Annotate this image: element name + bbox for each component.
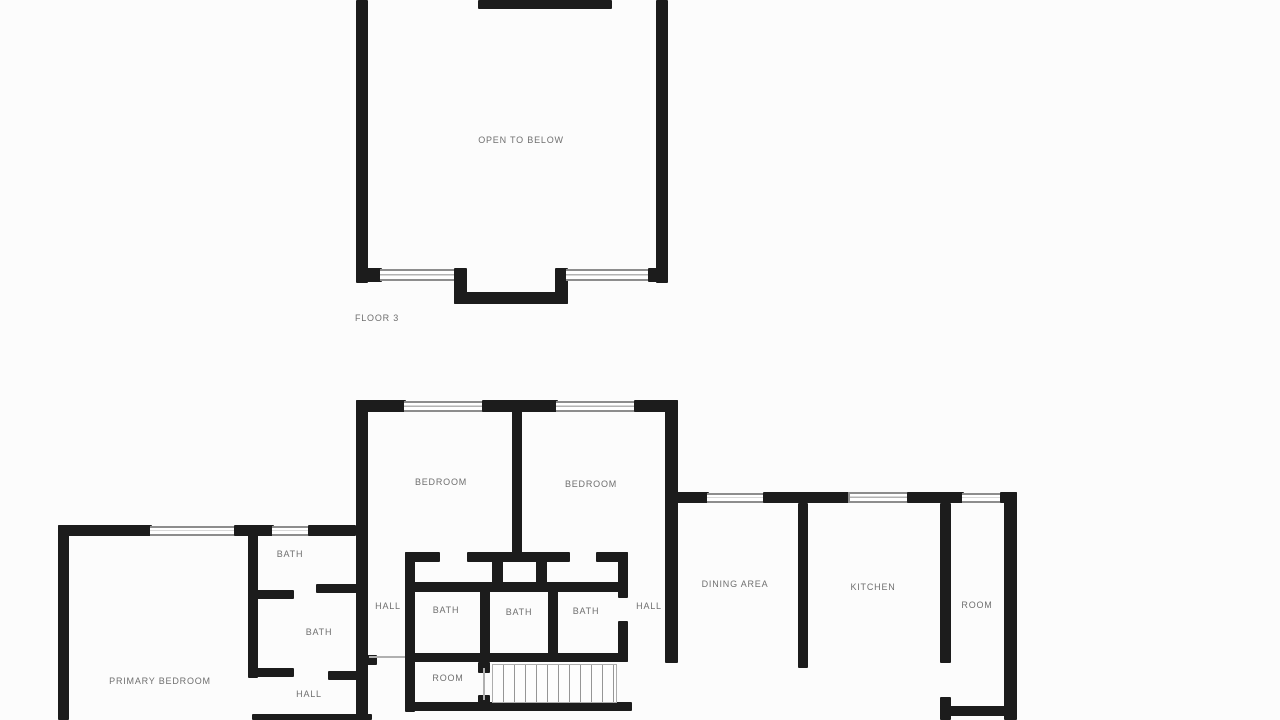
interior-wall: [940, 503, 951, 663]
staircase: [492, 664, 617, 703]
floor-caption: FLOOR 3: [355, 313, 399, 323]
interior-wall: [248, 590, 294, 599]
interior-wall: [248, 533, 258, 678]
interior-wall: [405, 653, 628, 662]
room-label-hall-left: HALL: [375, 601, 401, 611]
interior-wall: [548, 590, 558, 655]
wall-segment: [634, 400, 678, 412]
floor-plan-image: OPEN TO BELOW FLOOR 3: [0, 0, 1280, 720]
floor-plan-drawing: OPEN TO BELOW FLOOR 3: [0, 0, 1280, 720]
door-opening-line: [369, 656, 405, 658]
room-label-bath-center-3: BATH: [573, 606, 600, 616]
wall-segment: [648, 268, 668, 282]
room-label-open-to-below: OPEN TO BELOW: [478, 135, 564, 145]
room-label-bedroom-left: BEDROOM: [415, 477, 467, 487]
room-label-hall-right: HALL: [636, 601, 662, 611]
room-label-bath-upper-left: BATH: [277, 549, 304, 559]
window: [566, 269, 652, 281]
window: [962, 493, 1002, 503]
door-opening-line: [483, 668, 485, 700]
interior-wall: [512, 410, 522, 560]
room-label-dining-area: DINING AREA: [702, 579, 769, 589]
wall-segment: [454, 292, 568, 304]
wall-segment: [308, 525, 356, 536]
room-label-kitchen: KITCHEN: [850, 582, 895, 592]
wall-segment: [940, 706, 1017, 716]
window: [150, 526, 236, 536]
interior-wall: [467, 552, 570, 562]
interior-wall: [480, 590, 490, 655]
wall-segment: [356, 0, 368, 283]
window: [556, 401, 636, 412]
window: [404, 401, 484, 412]
room-label-room-far-right: ROOM: [961, 600, 992, 610]
interior-wall: [405, 552, 440, 562]
interior-wall: [405, 552, 415, 712]
wall-segment: [356, 268, 382, 282]
room-label-bath-center-1: BATH: [433, 605, 460, 615]
wall-segment: [763, 492, 850, 503]
wall-segment: [58, 525, 69, 720]
window: [380, 269, 456, 281]
room-label-room-center: ROOM: [432, 673, 463, 683]
interior-wall: [328, 671, 367, 680]
interior-wall: [248, 668, 294, 677]
wall-segment: [665, 400, 678, 663]
wall-segment: [665, 492, 709, 503]
wall-segment: [356, 400, 406, 412]
wall-segment: [405, 702, 632, 711]
interior-wall: [596, 552, 628, 562]
room-label-bath-lower-left: BATH: [306, 627, 333, 637]
room-label-hall-bottom-left: HALL: [296, 689, 322, 699]
room-label-primary-bedroom: PRIMARY BEDROOM: [109, 676, 211, 686]
wall-segment: [1004, 492, 1017, 720]
interior-wall: [798, 503, 808, 668]
wall-segment: [478, 0, 612, 9]
window: [707, 493, 765, 503]
wall-segment: [907, 492, 964, 503]
window: [272, 526, 310, 536]
wall-segment: [252, 714, 372, 720]
interior-wall: [316, 584, 367, 593]
window: [848, 492, 909, 503]
wall-segment: [656, 0, 668, 283]
interior-wall: [413, 582, 625, 592]
room-label-bath-center-2: BATH: [506, 607, 533, 617]
room-label-bedroom-right: BEDROOM: [565, 479, 617, 489]
wall-segment: [58, 525, 152, 536]
